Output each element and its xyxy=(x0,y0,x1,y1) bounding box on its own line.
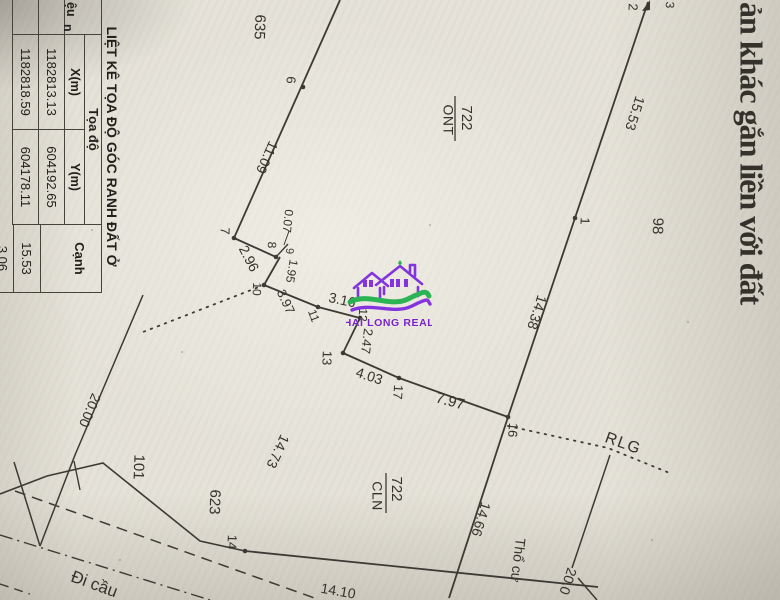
boundary-vertex-dot xyxy=(506,415,511,420)
coordinate-table: LIỆT KÊ TỌA ĐỘ GÓC RANH ĐẤT Ở ệu n Tọa đ… xyxy=(0,0,124,293)
label-vertex-10: 10 xyxy=(250,282,264,296)
boundary-vertex-dot xyxy=(232,236,237,241)
label-dim-7-97: 7.97 xyxy=(434,389,467,413)
boundary-line xyxy=(234,0,340,238)
paper-speckle xyxy=(119,559,121,561)
boundary-vertex-dot xyxy=(573,216,578,221)
label-dim-3-97: 3.97 xyxy=(274,287,298,316)
label-dim-1-95: 1.95 xyxy=(283,258,301,284)
watermark-logo: HAI LONG REAL xyxy=(346,258,432,334)
table-coord-group-header: Tọa độ xyxy=(84,35,102,225)
paper-speckle xyxy=(687,321,689,323)
table-title: LIỆT KÊ TỌA ĐỘ GÓC RANH ĐẤT Ở xyxy=(102,0,122,293)
label-dim-14-10: 14.10 xyxy=(320,580,357,600)
label-parcel-722-cln-num: 722 xyxy=(388,476,405,501)
table-row2-x: 1182818.59 xyxy=(12,35,38,130)
table-edge-header: Cạnh xyxy=(40,225,102,293)
label-vertex-11: 11 xyxy=(305,307,323,324)
label-road-name-di-cau: Đi cầu xyxy=(68,567,120,600)
label-vertex-17: 17 xyxy=(390,384,406,400)
label-dim-14-66: 14.66 xyxy=(468,500,494,538)
label-vertex-6: 6 xyxy=(283,76,298,84)
boundary-line xyxy=(74,461,80,490)
table-row1-id-cell xyxy=(38,0,64,35)
boundary-line xyxy=(15,491,320,600)
label-vertex-8: 8 xyxy=(265,241,279,248)
label-vertex-13: 13 xyxy=(319,351,334,366)
table-row2-y: 604178.11 xyxy=(12,130,38,225)
table-id-fragment-1: ệu xyxy=(64,2,78,17)
paper-speckle xyxy=(651,539,653,541)
label-vertex-3: 3 xyxy=(663,1,677,8)
label-parcel-623: 623 xyxy=(206,489,224,515)
label-dim-20-0-right: 20.0 xyxy=(556,566,580,597)
label-dim-11-09: 11.09 xyxy=(253,139,282,177)
label-dim-4-03: 4.03 xyxy=(354,364,385,388)
boundary-vertex-dot xyxy=(274,255,279,260)
watermark-swoosh xyxy=(350,292,430,310)
table-y-header: Y(m) xyxy=(64,130,84,225)
label-dim-0-07: 0.07 xyxy=(280,209,296,234)
boundary-vertex-dot xyxy=(301,85,306,90)
label-parcel-722-ont-type: ONT xyxy=(440,104,456,135)
label-dim-20-00-left: 20.00 xyxy=(76,391,105,430)
boundary-line xyxy=(14,462,40,546)
label-vertex-14: 14 xyxy=(224,535,239,550)
label-parcel-98: 98 xyxy=(649,217,667,234)
table-edge-value-1: 15.53 xyxy=(13,225,40,293)
label-vertex-16: 16 xyxy=(505,422,521,438)
table-row1-y: 604192.65 xyxy=(38,130,64,225)
boundary-vertex-dot xyxy=(397,376,402,381)
label-parcel-635: 635 xyxy=(251,14,269,40)
boundary-line xyxy=(284,231,289,245)
label-doc-title-fragment: ản khác gắn liền với đất xyxy=(734,2,770,306)
watermark-brand-text: HAI LONG REAL xyxy=(346,317,432,329)
table-row2-id-cell xyxy=(12,0,38,35)
paper-speckle xyxy=(181,351,183,353)
label-parcel-722-cln-type: CLN xyxy=(369,481,385,511)
north-arrow-head xyxy=(642,0,650,11)
label-vertex-1: 1 xyxy=(577,217,592,225)
boundary-line xyxy=(264,257,280,285)
boundary-line xyxy=(508,2,648,417)
label-vertex-9: 9 xyxy=(283,248,295,255)
label-dim-2-96: 2.96 xyxy=(236,243,263,275)
boundary-line xyxy=(245,551,598,587)
label-dim-14-38: 14.38 xyxy=(524,293,550,331)
boundary-line xyxy=(578,578,597,600)
boundary-line xyxy=(508,426,672,474)
paper-speckle xyxy=(429,224,431,226)
label-parcel-722-ont-num: 722 xyxy=(458,105,475,130)
label-vertex-7: 7 xyxy=(217,227,232,235)
label-dim-15-53: 15.53 xyxy=(622,94,648,132)
boundary-vertex-dot xyxy=(243,549,248,554)
label-dim-14-73: 14.73 xyxy=(263,432,292,471)
boundary-vertex-dot xyxy=(341,351,346,356)
table-x-header: X(m) xyxy=(64,35,84,130)
boundary-line xyxy=(572,455,610,568)
watermark-sparkle xyxy=(398,260,402,266)
label-boundary-rlg: RLG xyxy=(603,429,644,458)
label-land-type-tho-cu: Thổ cư xyxy=(508,537,529,583)
table-edge-value-2: 3.06 xyxy=(0,225,13,293)
label-parcel-101: 101 xyxy=(130,454,148,480)
label-vertex-2: 2 xyxy=(625,3,640,11)
boundary-line xyxy=(0,584,30,594)
table-row1-x: 1182813.13 xyxy=(38,35,64,130)
scanned-land-survey-document: ản khác gắn liền với đất63598101623722ON… xyxy=(0,0,780,600)
boundary-line xyxy=(143,285,264,332)
